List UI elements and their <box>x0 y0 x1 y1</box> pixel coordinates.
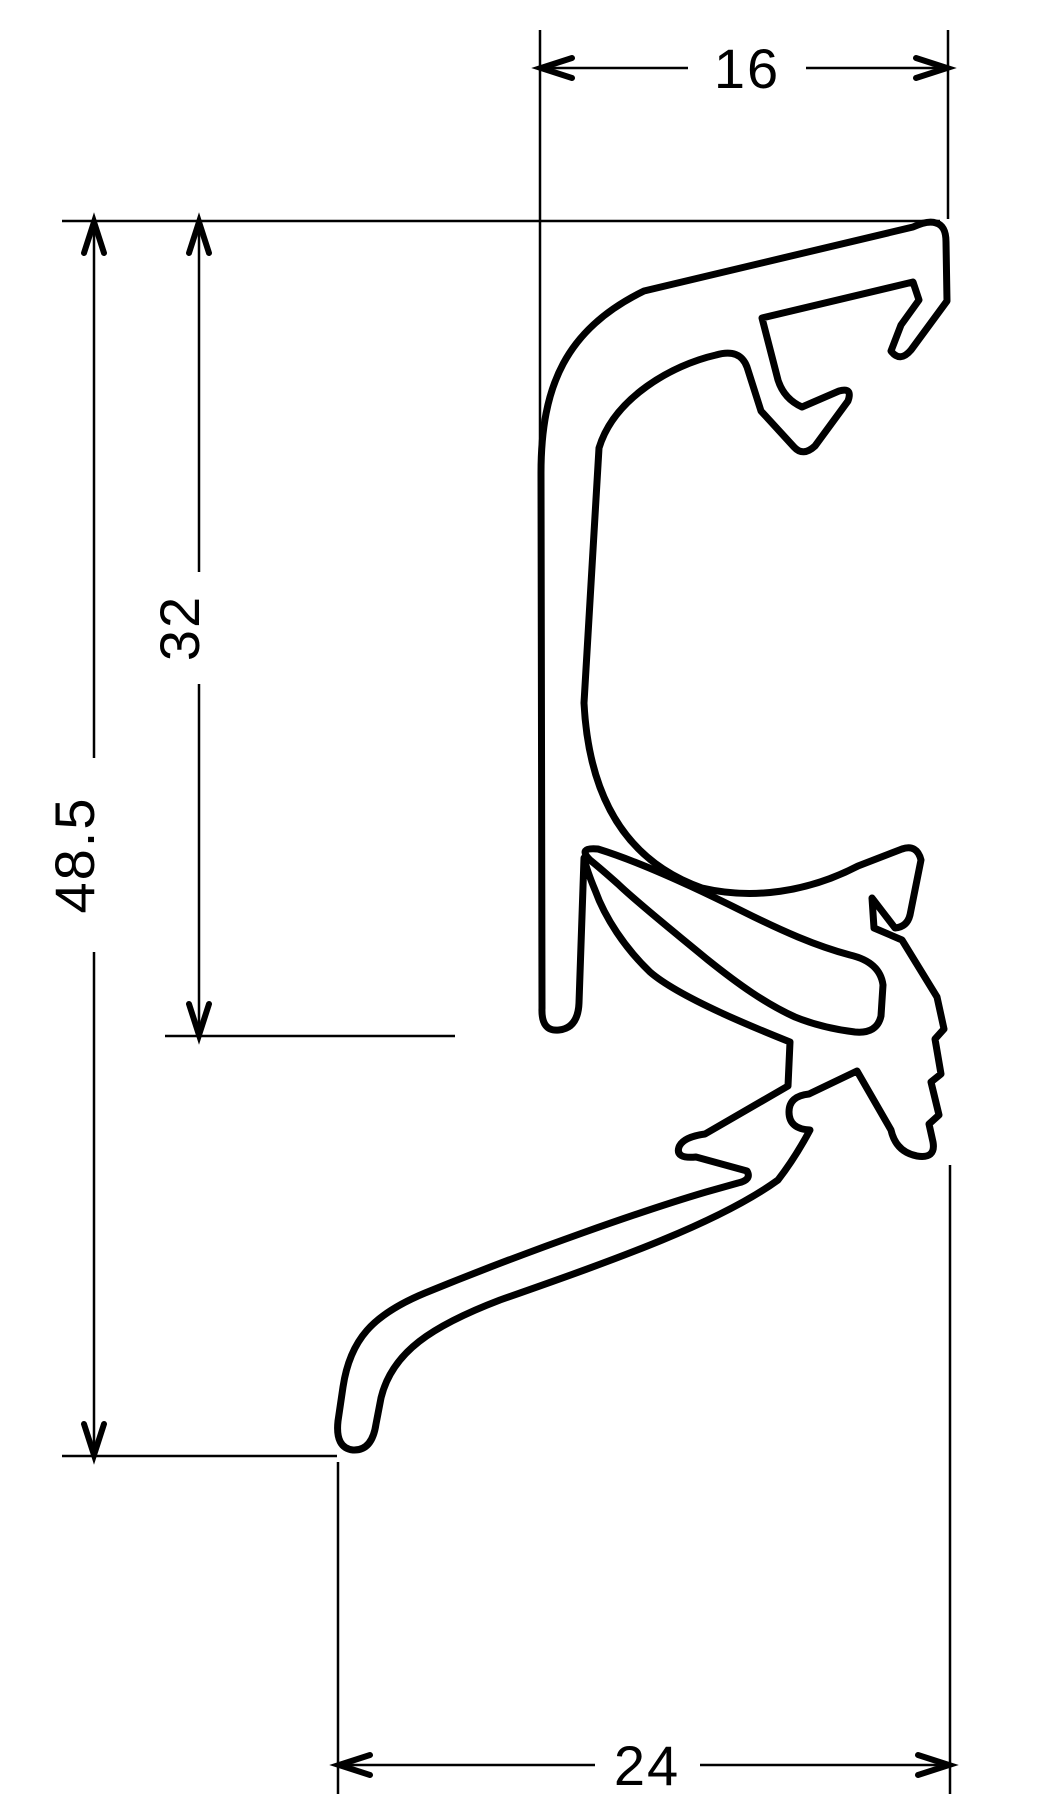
dimension-label-bottom-width: 24 <box>614 1734 680 1797</box>
drawing-sheet: 16 32 48.5 24 <box>0 0 1040 1807</box>
dimension-label-inner-height: 32 <box>148 595 211 661</box>
profile-outline <box>338 222 947 1450</box>
profile-geometry <box>338 222 947 1450</box>
dimension-label-total-height: 48.5 <box>43 797 106 914</box>
dimension-label-top-width: 16 <box>714 37 780 100</box>
technical-drawing: 16 32 48.5 24 <box>0 0 1040 1807</box>
